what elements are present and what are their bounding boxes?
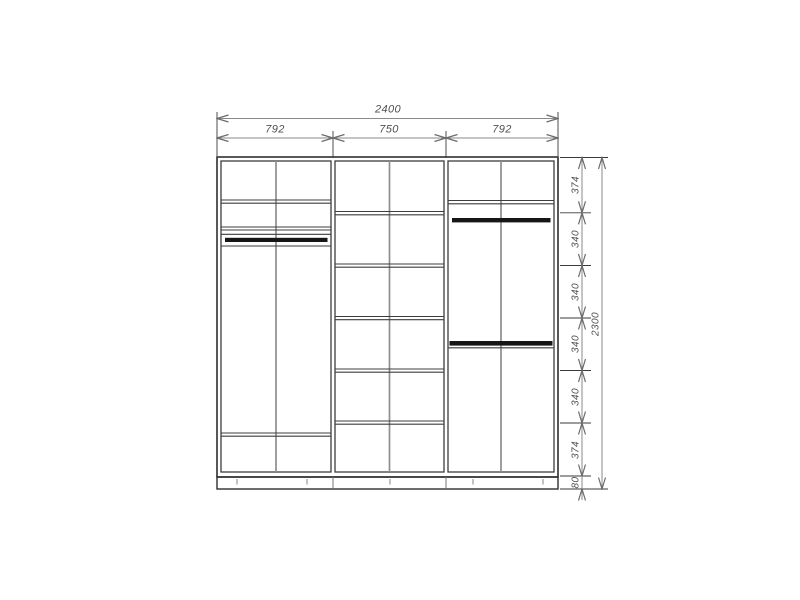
left-hanging-rod [225, 238, 328, 242]
drawing-page: 2400 792 750 792 374 340 340 3 [0, 0, 800, 600]
label-height-seg-6: 374 [571, 441, 582, 459]
dimensions-right: 374 340 340 340 340 374 80 2300 [560, 158, 608, 501]
technical-drawing-canvas: 2400 792 750 792 374 340 340 3 [0, 0, 800, 600]
plinth-leg-ticks [237, 479, 543, 485]
cabinet-body [217, 157, 558, 489]
label-section-width-left: 792 [265, 124, 285, 136]
label-section-width-right: 792 [492, 124, 512, 136]
label-total-width: 2400 [374, 104, 402, 116]
total-height-dimension: 2300 [591, 158, 603, 490]
label-total-height: 2300 [591, 312, 602, 337]
label-plinth-height: 80 [571, 477, 582, 489]
middle-section [335, 161, 444, 472]
label-height-seg-1: 374 [571, 176, 582, 194]
label-height-seg-5: 340 [571, 388, 582, 406]
left-section [221, 161, 331, 472]
label-section-width-middle: 750 [379, 124, 399, 136]
right-section [448, 161, 554, 472]
plinth [217, 477, 558, 489]
label-height-seg-2: 340 [571, 230, 582, 248]
label-height-seg-4: 340 [571, 335, 582, 353]
right-hanging-rod-lower [450, 341, 553, 346]
right-hanging-rod-upper [452, 218, 551, 222]
label-height-seg-3: 340 [571, 283, 582, 301]
dimensions-top: 2400 792 750 792 [217, 104, 558, 159]
